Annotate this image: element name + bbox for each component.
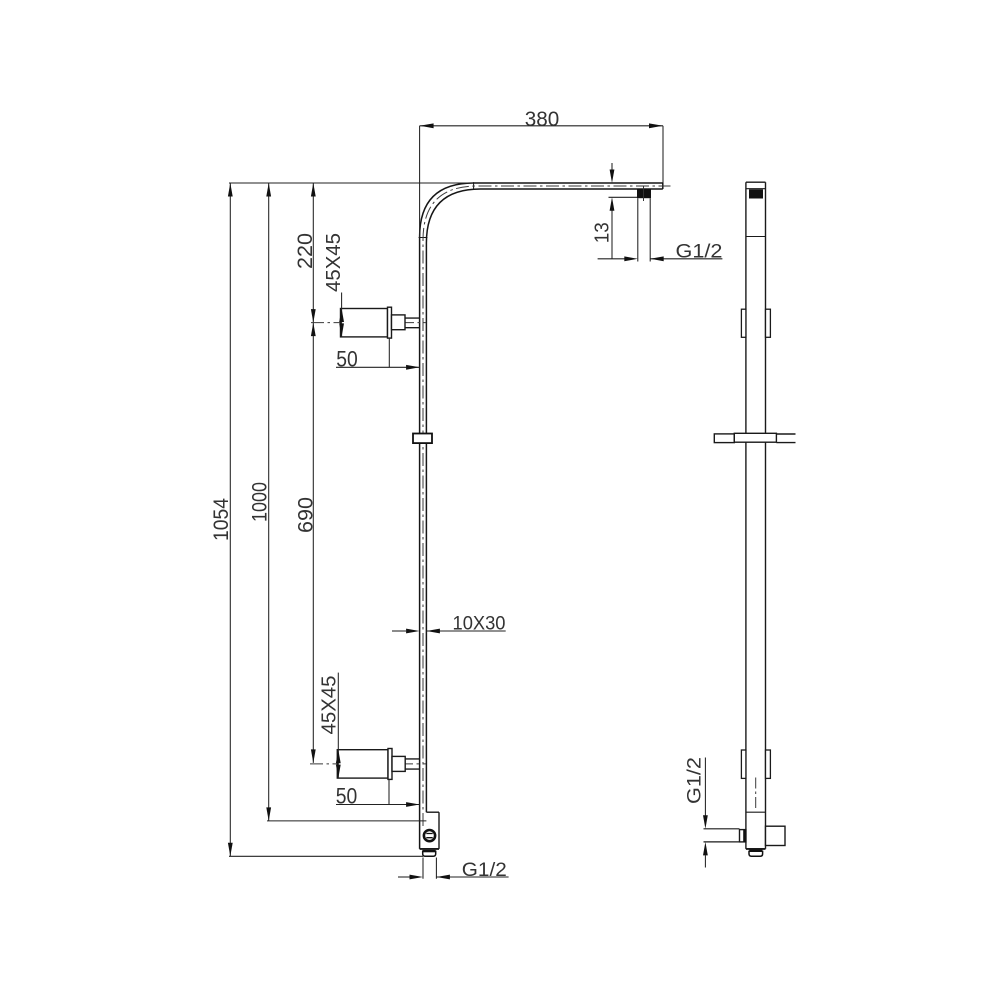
svg-text:220: 220 — [294, 233, 317, 269]
svg-text:G1/2: G1/2 — [676, 242, 723, 263]
svg-text:1054: 1054 — [210, 498, 233, 541]
svg-text:50: 50 — [336, 784, 358, 809]
svg-text:G1/2: G1/2 — [684, 757, 705, 804]
svg-text:45X45: 45X45 — [319, 676, 341, 735]
svg-text:45X45: 45X45 — [323, 233, 345, 292]
svg-text:1000: 1000 — [249, 482, 272, 522]
svg-text:G1/2: G1/2 — [462, 860, 507, 881]
svg-text:50: 50 — [336, 346, 358, 371]
svg-text:13: 13 — [592, 222, 614, 243]
svg-text:690: 690 — [294, 497, 317, 533]
svg-text:10X30: 10X30 — [453, 614, 506, 635]
svg-text:380: 380 — [525, 108, 560, 131]
